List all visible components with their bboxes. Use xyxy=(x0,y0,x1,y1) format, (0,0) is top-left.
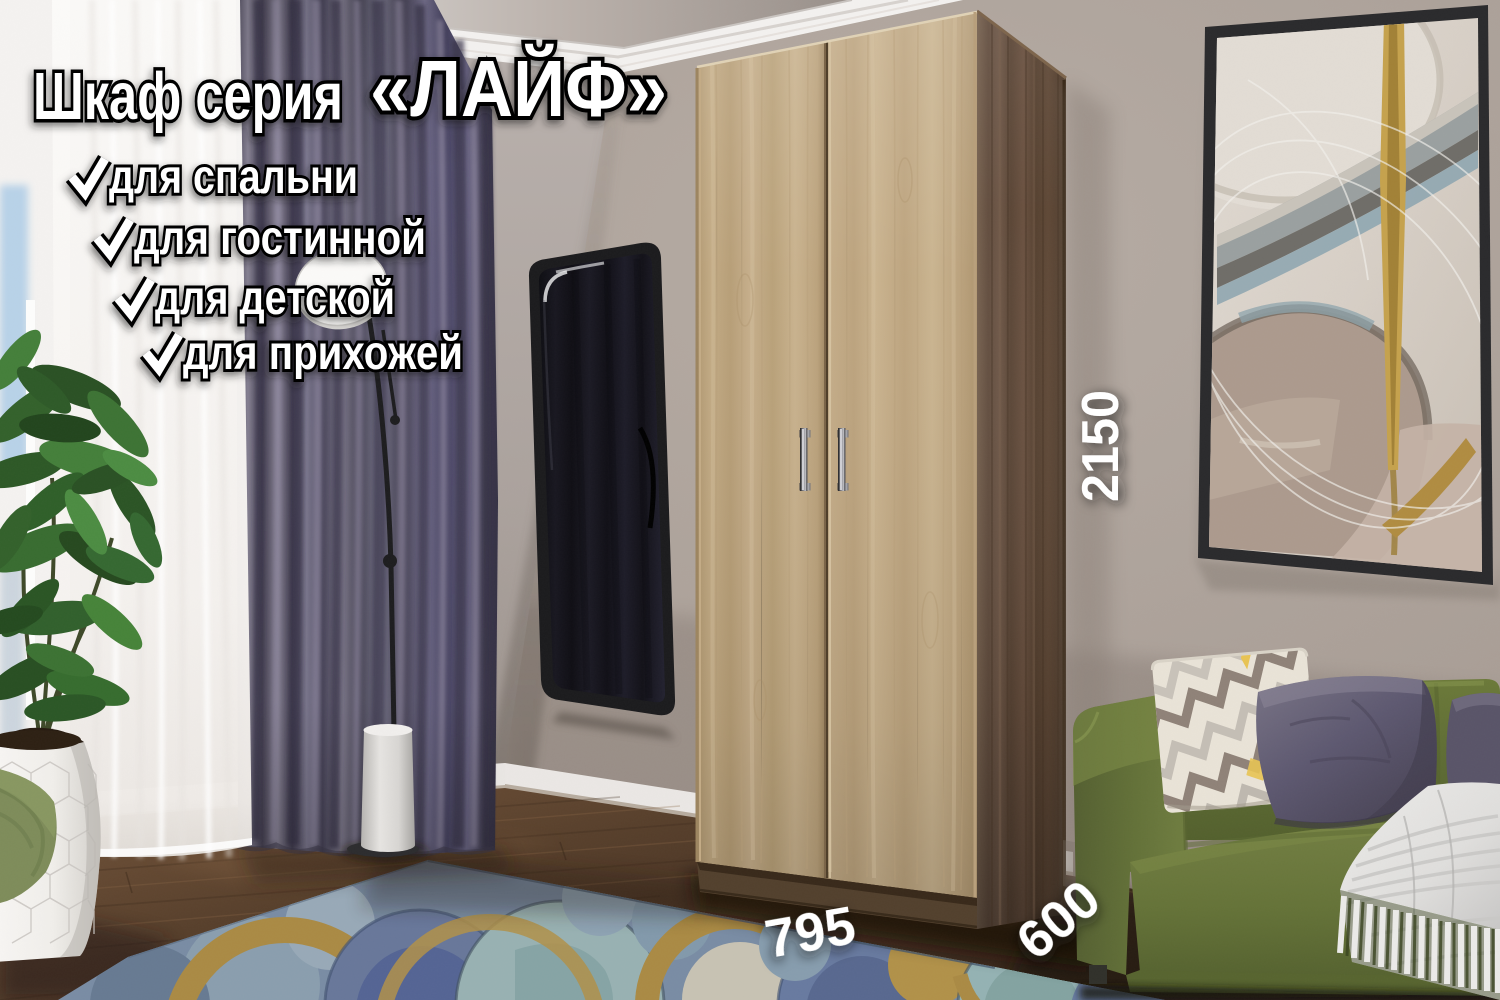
svg-text:для детской: для детской xyxy=(155,272,395,325)
svg-text:«ЛАЙФ»: «ЛАЙФ» xyxy=(370,43,667,133)
svg-text:для спальни: для спальни xyxy=(109,151,358,204)
svg-text:для гостинной: для гостинной xyxy=(134,212,426,265)
svg-text:Шкаф серия: Шкаф серия xyxy=(33,59,343,134)
svg-text:для прихожей: для прихожей xyxy=(183,327,463,380)
svg-text:2150: 2150 xyxy=(1072,390,1130,502)
